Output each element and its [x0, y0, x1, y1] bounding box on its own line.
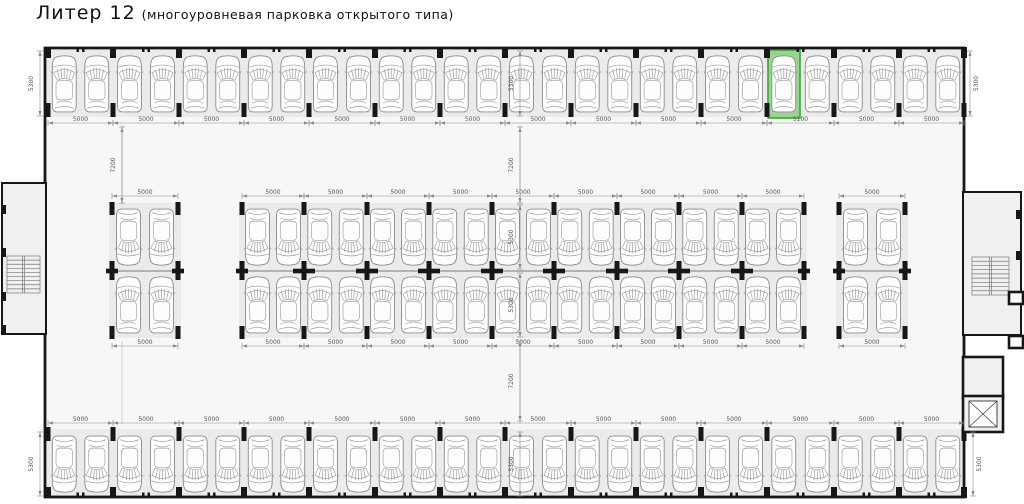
pillar: [668, 269, 690, 274]
car: [842, 277, 869, 333]
parking-space: [410, 436, 437, 492]
parking-space: [869, 436, 896, 492]
parking-space: [650, 277, 677, 333]
dim-label: 5000: [137, 339, 152, 346]
dim-label: 5000: [864, 189, 879, 196]
parking-space: [588, 209, 615, 265]
car: [556, 277, 583, 333]
pillar: [307, 103, 312, 117]
dim-label: 5000: [328, 339, 343, 346]
car: [541, 56, 568, 112]
dim-label: 5000: [390, 189, 405, 196]
dim-label: 5000: [765, 339, 780, 346]
car: [525, 209, 552, 265]
dim-arrow: [971, 491, 974, 496]
parking-space: [704, 56, 731, 112]
pillar: [1, 205, 6, 214]
car: [431, 277, 458, 333]
car: [244, 277, 271, 333]
dim-label: 5000: [864, 339, 879, 346]
dim-label: 5000: [269, 416, 284, 423]
pillar: [569, 103, 574, 117]
parking-space: [148, 277, 175, 333]
parking-space: [116, 436, 143, 492]
dim-label: 5000: [596, 416, 611, 423]
pillar: [677, 202, 682, 215]
parking-space: [443, 436, 470, 492]
parking-space: [606, 436, 633, 492]
parking-space: [312, 436, 339, 492]
pillar: [798, 269, 810, 274]
dim-label: 5000: [265, 339, 280, 346]
car: [588, 277, 615, 333]
dim-label: 5000: [726, 416, 741, 423]
car: [713, 209, 740, 265]
car: [902, 56, 929, 112]
pillar: [899, 269, 911, 274]
car: [650, 277, 677, 333]
pillar: [242, 103, 247, 117]
parking-space: [247, 56, 274, 112]
dim-arrow: [968, 111, 971, 116]
car: [115, 277, 142, 333]
car: [149, 56, 176, 112]
pillar: [242, 427, 247, 441]
pillar: [307, 427, 312, 441]
parking-floor-plan: 5000500050005000500050005000500050005000…: [0, 0, 1024, 504]
dim-label: 5000: [596, 116, 611, 123]
dim-label: 5000: [859, 116, 874, 123]
parking-space: [410, 56, 437, 112]
pillar: [176, 202, 181, 215]
car: [312, 56, 339, 112]
car: [804, 436, 831, 492]
car: [51, 56, 78, 112]
car: [650, 209, 677, 265]
parking-space: [744, 209, 771, 265]
pillar: [490, 326, 495, 339]
parking-space: [275, 277, 302, 333]
pillar: [240, 326, 245, 339]
car: [869, 436, 896, 492]
parking-space: [182, 56, 209, 112]
parking-space: [149, 56, 176, 112]
parking-space: [148, 209, 175, 265]
car: [148, 277, 175, 333]
car: [443, 56, 470, 112]
car: [619, 209, 646, 265]
dim-label: 5000: [138, 416, 153, 423]
column-base: [1009, 336, 1023, 348]
dim-label: 5300: [508, 229, 515, 244]
column-base: [1009, 292, 1023, 304]
dim-label: 5000: [578, 339, 593, 346]
dim-label: 5000: [465, 416, 480, 423]
pillar: [552, 326, 557, 339]
dim-label: 5000: [726, 116, 741, 123]
pillar: [177, 427, 182, 441]
dim-label: 5000: [328, 189, 343, 196]
pillar: [765, 103, 770, 117]
parking-space: [475, 56, 502, 112]
parking-space: [574, 436, 601, 492]
dim-label: 5000: [515, 339, 530, 346]
car: [275, 209, 302, 265]
parking-space: [737, 436, 764, 492]
parking-space: [770, 436, 797, 492]
pillar: [111, 103, 116, 117]
car: [149, 436, 176, 492]
dim-arrow: [968, 51, 971, 56]
parking-space: [681, 209, 708, 265]
parking-space: [934, 56, 961, 112]
car: [306, 209, 333, 265]
pillar: [903, 202, 908, 215]
dim-label: 5300: [508, 76, 515, 91]
parking-space: [556, 277, 583, 333]
dim-label: 5000: [661, 416, 676, 423]
parking-space: [541, 436, 568, 492]
parking-space: [713, 277, 740, 333]
utility-room: [963, 357, 1003, 399]
car: [804, 56, 831, 112]
car: [148, 209, 175, 265]
dim-label: 5000: [703, 189, 718, 196]
pillar: [606, 269, 628, 274]
pillar: [832, 103, 837, 117]
car: [842, 209, 869, 265]
parking-space: [338, 209, 365, 265]
car: [116, 56, 143, 112]
dim-label: 5000: [859, 416, 874, 423]
pillar: [490, 202, 495, 215]
pillar: [373, 427, 378, 441]
car: [378, 56, 405, 112]
pillar: [615, 326, 620, 339]
dim-arrow: [38, 432, 41, 437]
pillar: [373, 103, 378, 117]
pillar: [177, 103, 182, 117]
car: [770, 436, 797, 492]
car: [737, 436, 764, 492]
car: [671, 56, 698, 112]
parking-space: [83, 436, 110, 492]
car: [83, 56, 110, 112]
parking-space: [51, 436, 78, 492]
parking-space: [214, 56, 241, 112]
pillar: [569, 427, 574, 441]
car: [410, 56, 437, 112]
parking-space: [463, 209, 490, 265]
parking-space: [525, 209, 552, 265]
parking-space: [115, 277, 142, 333]
parking-space: [902, 436, 929, 492]
car: [737, 56, 764, 112]
dim-label: 5000: [400, 416, 415, 423]
dim-label: 5000: [793, 416, 808, 423]
parking-space: [842, 209, 869, 265]
dim-label: 5000: [265, 189, 280, 196]
parking-space: [443, 56, 470, 112]
parking-space: [115, 209, 142, 265]
car: [574, 56, 601, 112]
dim-label: 5000: [204, 116, 219, 123]
parking-space: [525, 277, 552, 333]
car: [115, 209, 142, 265]
pillar: [481, 269, 503, 274]
parking-space: [463, 277, 490, 333]
dim-label: 5000: [400, 116, 415, 123]
parking-space: [619, 209, 646, 265]
pillar: [293, 269, 315, 274]
car: [182, 56, 209, 112]
pillar: [832, 427, 837, 441]
car: [279, 436, 306, 492]
pillar: [552, 202, 557, 215]
pillar: [833, 269, 845, 274]
dim-label: 5000: [453, 189, 468, 196]
car: [475, 436, 502, 492]
car: [875, 277, 902, 333]
car: [312, 436, 339, 492]
car: [247, 436, 274, 492]
car: [902, 436, 929, 492]
parking-space: [556, 209, 583, 265]
pillar: [418, 269, 440, 274]
parking-space: [306, 277, 333, 333]
dim-label: 5000: [73, 116, 88, 123]
dim-label: 5000: [765, 189, 780, 196]
parking-space: [116, 56, 143, 112]
pillar: [802, 202, 807, 215]
parking-space: [83, 56, 110, 112]
car: [338, 277, 365, 333]
car: [463, 209, 490, 265]
dim-label: 7200: [110, 157, 117, 172]
car: [934, 56, 961, 112]
car: [639, 436, 666, 492]
parking-space: [51, 56, 78, 112]
car: [775, 209, 802, 265]
parking-space: [431, 209, 458, 265]
parking-space: [182, 436, 209, 492]
pillar: [1, 325, 6, 334]
parking-space: [214, 436, 241, 492]
car: [606, 56, 633, 112]
car: [934, 436, 961, 492]
pillar: [615, 202, 620, 215]
parking-space: [588, 277, 615, 333]
dim-label: 7200: [508, 157, 515, 172]
dim-label: 5000: [578, 189, 593, 196]
dim-label: 5000: [924, 416, 939, 423]
car: [400, 277, 427, 333]
dim-label: 5000: [530, 116, 545, 123]
pillar: [176, 326, 181, 339]
car: [369, 277, 396, 333]
pillar: [897, 103, 902, 117]
parking-space: [345, 56, 372, 112]
parking-space: [244, 209, 271, 265]
parking-space: [934, 436, 961, 492]
car: [279, 56, 306, 112]
dim-label: 5000: [334, 116, 349, 123]
parking-space: [770, 56, 797, 112]
pillar: [438, 427, 443, 441]
car: [869, 56, 896, 112]
dim-arrow: [38, 491, 41, 496]
car: [671, 436, 698, 492]
car: [116, 436, 143, 492]
parking-space: [671, 56, 698, 112]
pillar: [110, 326, 115, 339]
parking-space: [650, 209, 677, 265]
car: [244, 209, 271, 265]
car: [875, 209, 902, 265]
pillar: [427, 326, 432, 339]
pillar: [903, 326, 908, 339]
pillar: [365, 326, 370, 339]
car: [775, 277, 802, 333]
dim-label: 5300: [508, 297, 515, 312]
dim-label: 5000: [390, 339, 405, 346]
car: [744, 209, 771, 265]
pillar: [172, 269, 184, 274]
parking-space: [378, 436, 405, 492]
pillar: [543, 269, 565, 274]
parking-space: [639, 56, 666, 112]
pillar: [1016, 251, 1021, 260]
pillar: [503, 427, 508, 441]
parking-space: [306, 209, 333, 265]
parking-space: [247, 436, 274, 492]
parking-space: [804, 56, 831, 112]
car: [275, 277, 302, 333]
pillar: [503, 103, 508, 117]
dim-label: 5000: [661, 116, 676, 123]
parking-space: [244, 277, 271, 333]
car: [837, 436, 864, 492]
pillar: [427, 202, 432, 215]
dim-label: 5000: [73, 416, 88, 423]
parking-space: [775, 277, 802, 333]
car: [681, 209, 708, 265]
dim-label: 5000: [515, 189, 530, 196]
parking-space: [837, 436, 864, 492]
dim-label: 5000: [204, 416, 219, 423]
parking-space: [574, 56, 601, 112]
parking-space: [875, 209, 902, 265]
pillar: [302, 202, 307, 215]
pillar: [365, 202, 370, 215]
car: [770, 56, 797, 112]
stairwell-left: [2, 183, 46, 334]
car: [681, 277, 708, 333]
parking-space: [837, 56, 864, 112]
pillar: [765, 427, 770, 441]
parking-space: [400, 277, 427, 333]
pillar: [740, 202, 745, 215]
parking-space: [369, 209, 396, 265]
parking-space: [671, 436, 698, 492]
car: [556, 209, 583, 265]
parking-space: [541, 56, 568, 112]
pillar: [438, 103, 443, 117]
car: [541, 436, 568, 492]
dim-label: 5300: [976, 456, 983, 471]
car: [525, 277, 552, 333]
parking-space: [312, 56, 339, 112]
dim-label: 7200: [508, 373, 515, 388]
parking-space: [875, 277, 902, 333]
car: [338, 209, 365, 265]
parking-space: [606, 56, 633, 112]
parking-plan-page: Литер 12(многоуровневая парковка открыто…: [0, 0, 1024, 504]
parking-space: [275, 209, 302, 265]
car: [378, 436, 405, 492]
pillar: [677, 326, 682, 339]
parking-space: [804, 436, 831, 492]
parking-space: [681, 277, 708, 333]
parking-space: [338, 277, 365, 333]
car: [704, 436, 731, 492]
car: [619, 277, 646, 333]
parking-space: [369, 277, 396, 333]
pillar: [740, 326, 745, 339]
car: [247, 56, 274, 112]
parking-space: [902, 56, 929, 112]
car: [588, 209, 615, 265]
parking-space: [378, 56, 405, 112]
car: [431, 209, 458, 265]
parking-space: [345, 436, 372, 492]
parking-space: [475, 436, 502, 492]
parking-space: [431, 277, 458, 333]
car: [606, 436, 633, 492]
dim-label: 5000: [640, 189, 655, 196]
dim-label: 5000: [334, 416, 349, 423]
pillar: [110, 202, 115, 215]
pillar: [302, 326, 307, 339]
pillar: [356, 269, 378, 274]
car: [400, 209, 427, 265]
car: [744, 277, 771, 333]
pillar: [699, 427, 704, 441]
parking-space: [639, 436, 666, 492]
pillar: [106, 269, 118, 274]
pillar: [837, 326, 842, 339]
parking-space: [619, 277, 646, 333]
dim-label: 5000: [138, 116, 153, 123]
parking-space: [400, 209, 427, 265]
dim-label: 5000: [924, 116, 939, 123]
parking-space: [149, 436, 176, 492]
car: [51, 436, 78, 492]
dim-label: 5000: [530, 416, 545, 423]
car: [463, 277, 490, 333]
pillar: [634, 427, 639, 441]
dim-label: 5000: [137, 189, 152, 196]
dim-arrow: [38, 111, 41, 116]
parking-space: [737, 56, 764, 112]
car: [369, 209, 396, 265]
car: [574, 436, 601, 492]
dim-label: 5100: [793, 116, 808, 123]
car: [639, 56, 666, 112]
car: [345, 56, 372, 112]
car: [443, 436, 470, 492]
dim-label: 5300: [28, 456, 35, 471]
